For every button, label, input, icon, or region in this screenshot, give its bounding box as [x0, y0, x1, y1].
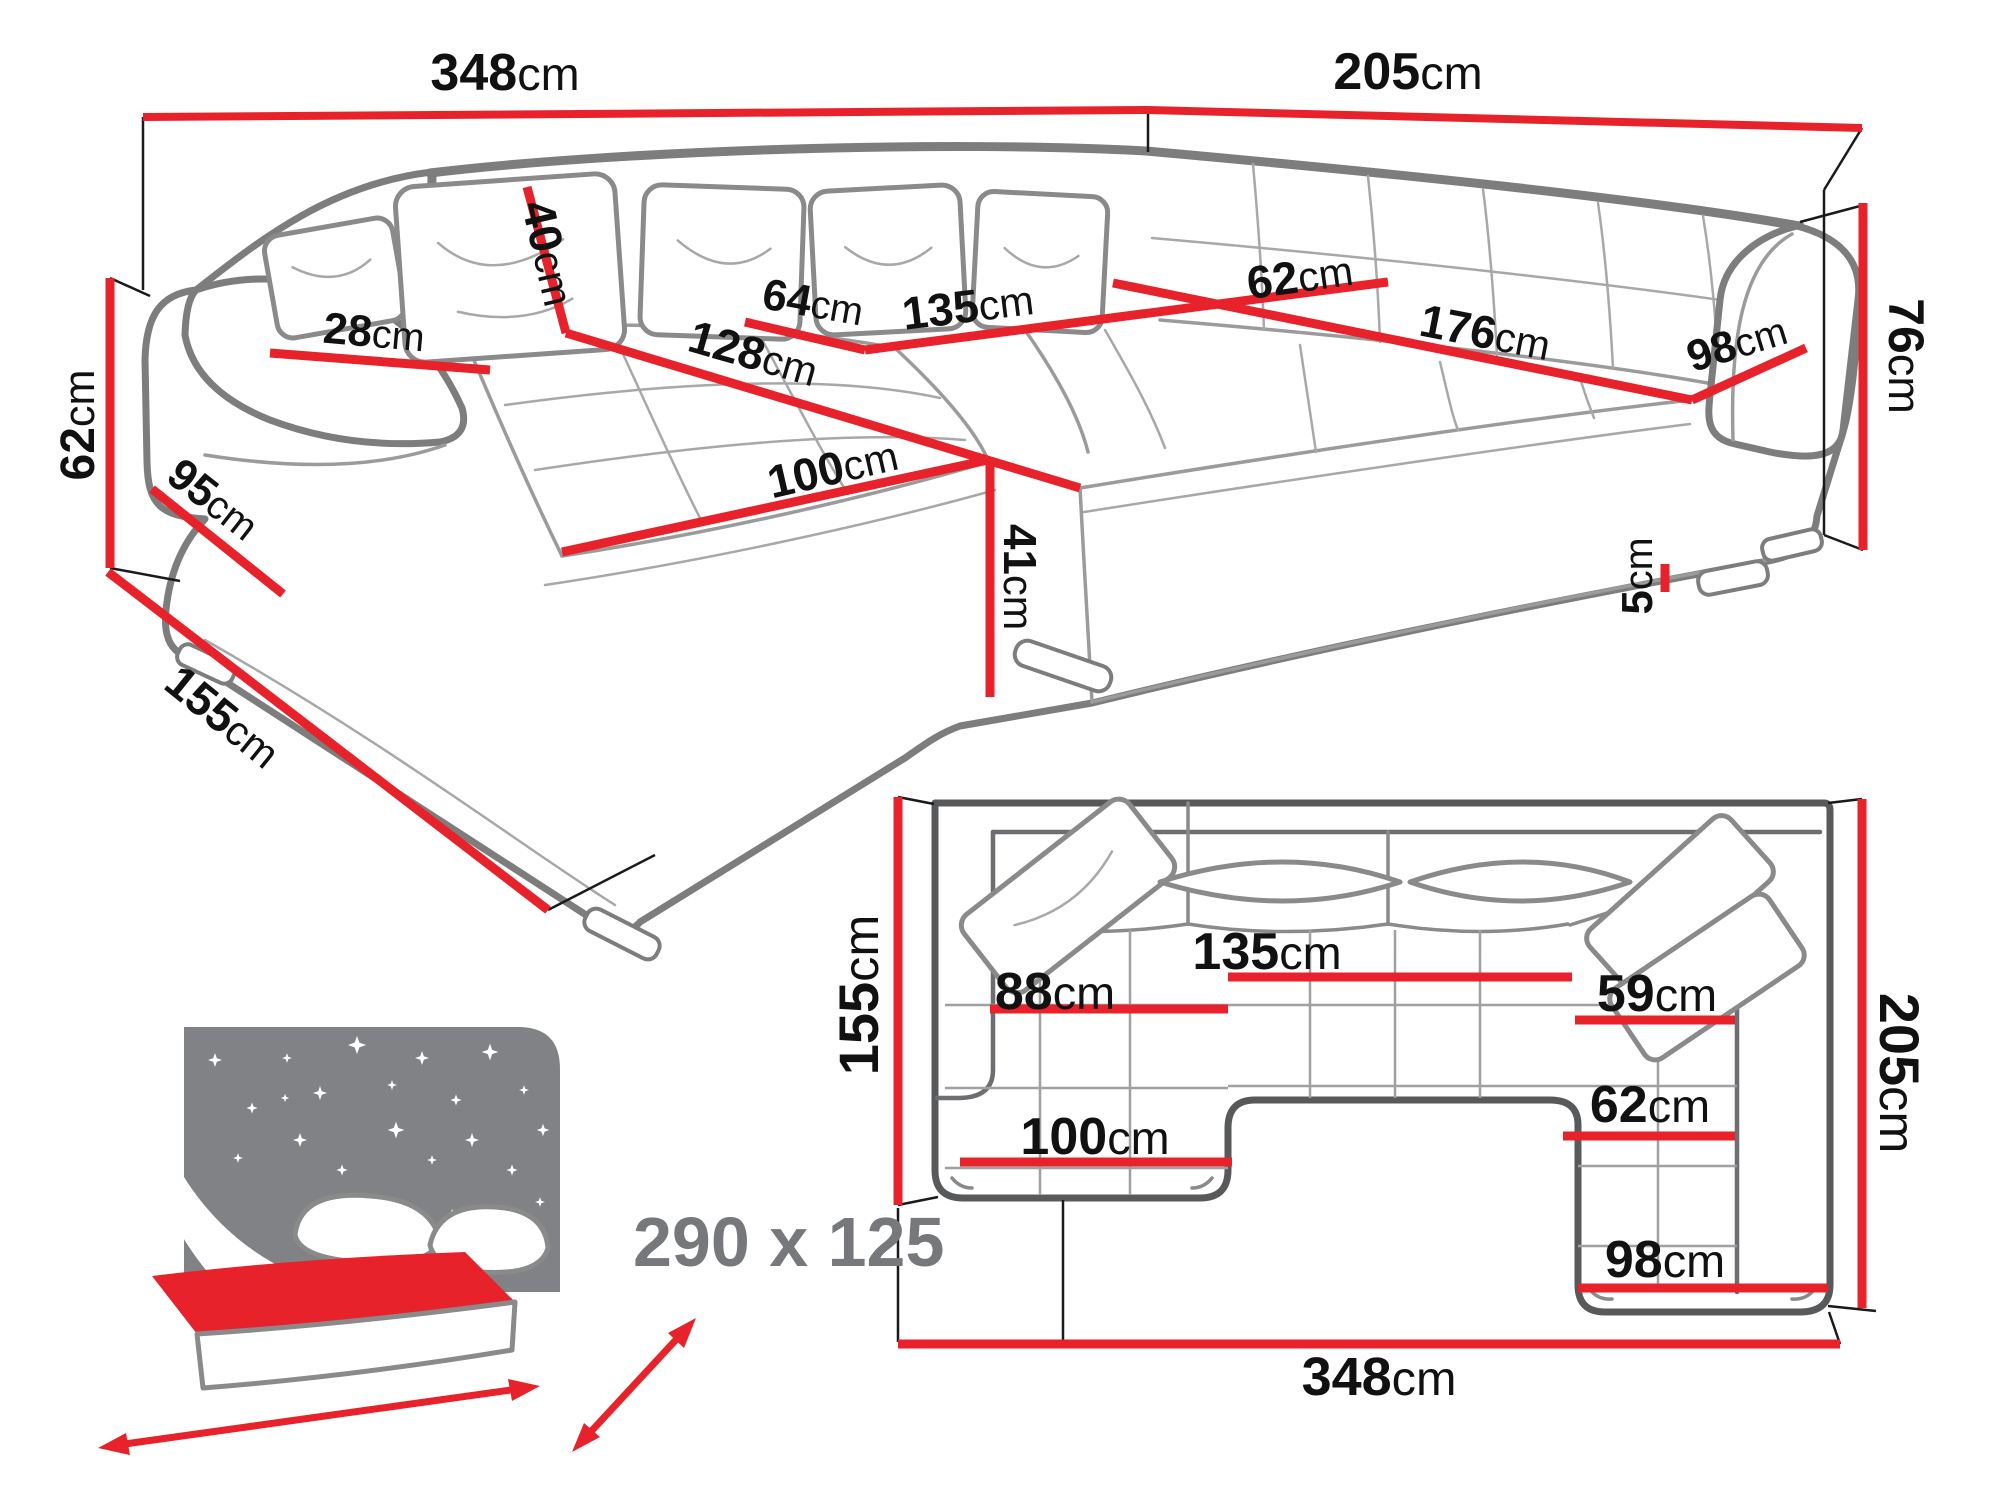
dim-label-plan-chaise-seat: 88cm [995, 963, 1115, 1021]
dim-label-plan-chaise-w: 100cm [1020, 1108, 1169, 1166]
dim-label-back-h: 76cm [1878, 298, 1934, 414]
dim-label-plan-total-width: 348cm [1302, 1347, 1457, 1407]
dim-label-plan-right-w: 98cm [1605, 1231, 1725, 1289]
dim-label-arm-h: 62cm [52, 370, 105, 481]
sofa-dimensions-diagram: 348cm 205cm 40cm 28cm 64cm 135cm 62cm 17… [0, 0, 2000, 1500]
dim-label-plan-right-seat: 62cm [1590, 1076, 1710, 1134]
sleeping-size-label: 290 x 125 [633, 1203, 944, 1281]
top-view: 155cm 88cm 135cm 59cm 205cm 62cm 100cm 9… [827, 794, 1931, 1407]
dim-label-plan-corner-seat: 59cm [1597, 965, 1717, 1023]
dim-label-plan-right-depth: 205cm [1868, 993, 1931, 1154]
dim-label-right-depth: 205cm [1333, 43, 1482, 101]
dim-label-seat-h: 41cm [994, 524, 1046, 630]
bed-icon [98, 1027, 696, 1455]
dim-label-back-width: 348cm [430, 44, 579, 102]
dim-label-plan-left-depth: 155cm [827, 915, 890, 1076]
dim-label-plan-mid-seat: 135cm [1192, 923, 1341, 981]
sleeping-function-badge: 290 x 125 [98, 1027, 944, 1455]
dim-label-leg-h: 5cm [1613, 537, 1662, 614]
